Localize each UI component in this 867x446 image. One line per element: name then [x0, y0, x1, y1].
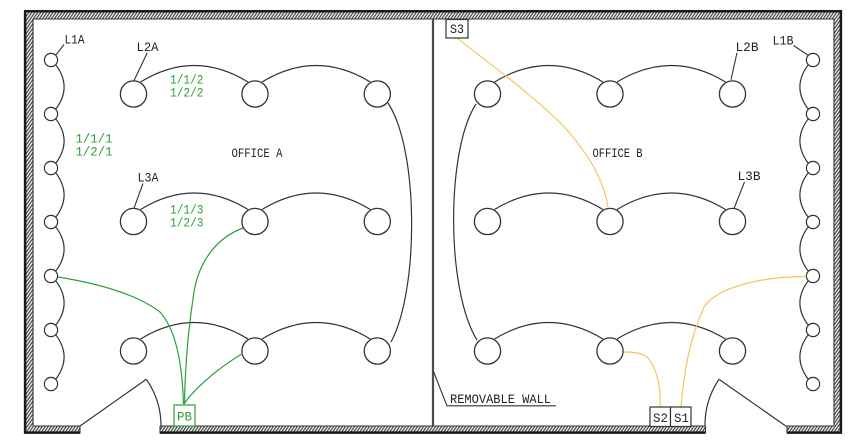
svg-text:L3A: L3A — [138, 171, 159, 186]
svg-text:L2B: L2B — [736, 40, 759, 55]
svg-text:1/1/3: 1/1/3 — [170, 204, 204, 218]
svg-text:1/1/2: 1/1/2 — [170, 74, 204, 88]
svg-text:S1: S1 — [674, 411, 689, 426]
svg-text:REMOVABLE WALL: REMOVABLE WALL — [450, 392, 551, 407]
svg-text:S3: S3 — [450, 22, 464, 37]
svg-text:L3B: L3B — [738, 169, 761, 184]
svg-text:OFFICE A: OFFICE A — [232, 146, 283, 161]
svg-text:1/2/1: 1/2/1 — [76, 146, 113, 160]
svg-text:1/1/1: 1/1/1 — [76, 133, 113, 147]
svg-text:OFFICE B: OFFICE B — [593, 146, 643, 161]
svg-text:L1B: L1B — [773, 34, 794, 49]
svg-text:L1A: L1A — [65, 33, 85, 48]
svg-text:1/2/3: 1/2/3 — [170, 217, 204, 231]
svg-text:PB: PB — [177, 410, 192, 425]
svg-text:S2: S2 — [653, 411, 668, 426]
svg-text:1/2/2: 1/2/2 — [170, 87, 204, 101]
